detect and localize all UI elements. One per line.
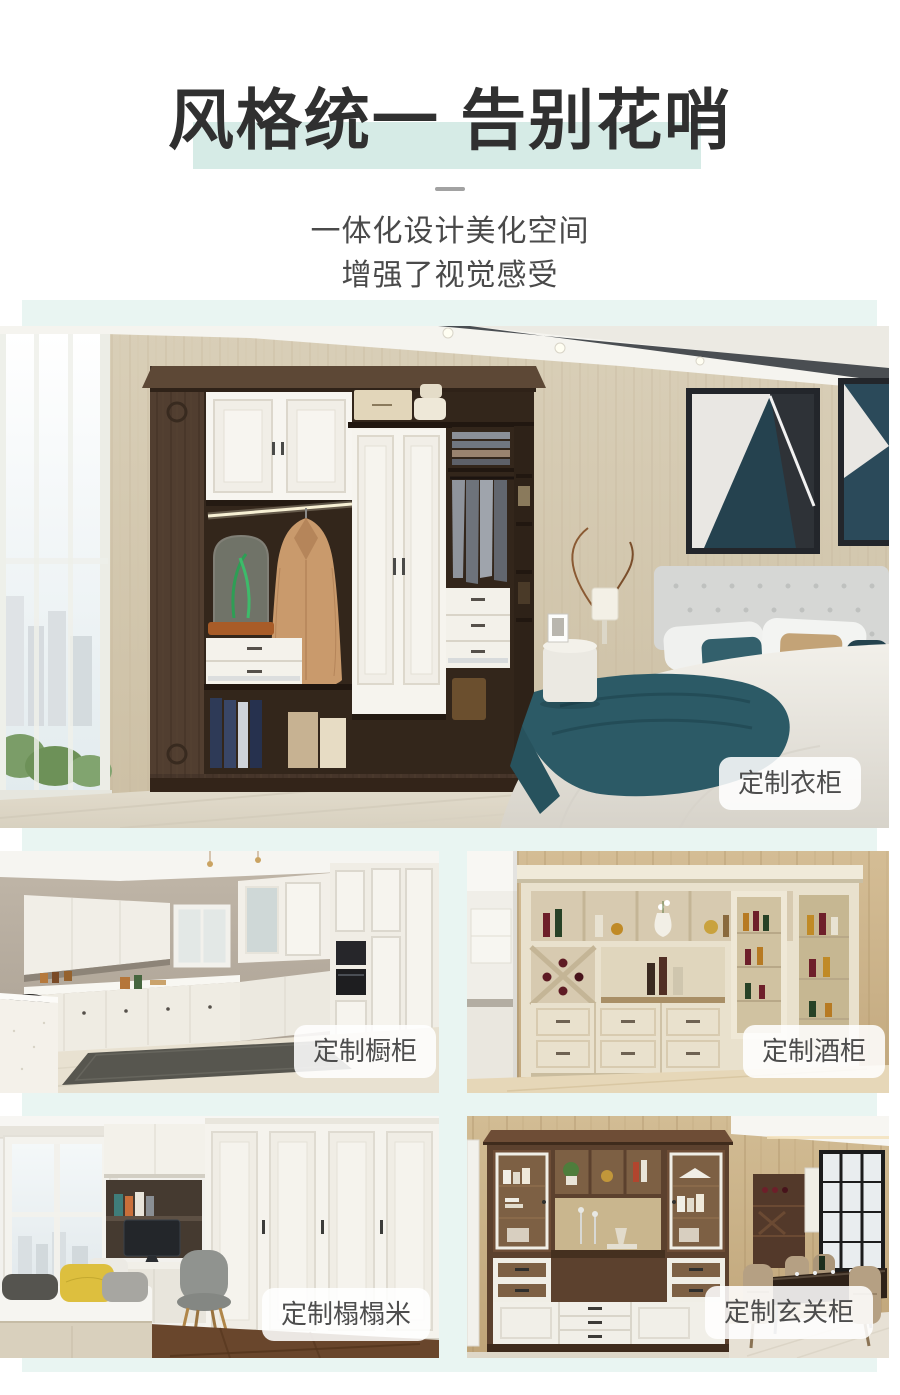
photo-label-entryway-cabinet: 定制玄关柜	[705, 1286, 873, 1339]
subtitle-line-1: 一体化设计美化空间	[0, 210, 900, 254]
bedroom-illustration	[0, 326, 889, 828]
photo-label-kitchen: 定制橱柜	[294, 1025, 436, 1078]
photo-custom-wardrobe: 定制衣柜	[0, 326, 889, 828]
page-title: 风格统一 告别花哨	[0, 72, 900, 168]
photo-custom-entryway-cabinet: 定制玄关柜	[467, 1116, 889, 1358]
title-divider	[435, 187, 465, 191]
photo-custom-kitchen: 定制橱柜	[0, 851, 439, 1093]
photo-custom-tatami: 定制榻榻米	[0, 1116, 439, 1358]
subtitle-line-2: 增强了视觉感受	[0, 254, 900, 298]
page: 风格统一 告别花哨 一体化设计美化空间 增强了视觉感受	[0, 0, 900, 1395]
photo-label-tatami: 定制榻榻米	[262, 1288, 430, 1341]
photo-label-wardrobe: 定制衣柜	[719, 757, 861, 810]
photo-custom-wine-cabinet: 定制酒柜	[467, 851, 889, 1093]
photo-label-wine-cabinet: 定制酒柜	[743, 1025, 885, 1078]
header-section: 风格统一 告别花哨 一体化设计美化空间 增强了视觉感受	[0, 0, 900, 300]
